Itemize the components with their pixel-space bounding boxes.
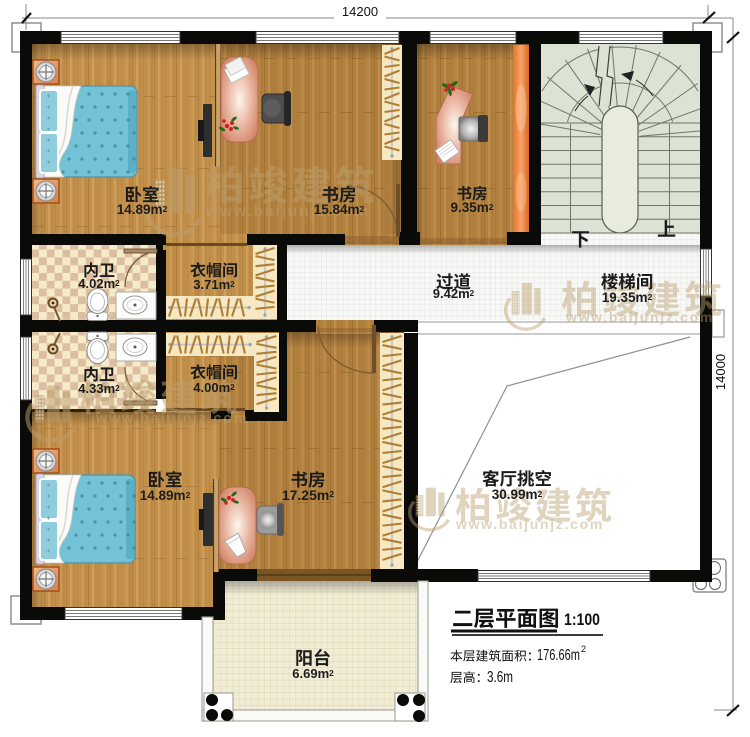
svg-text:6.69m2: 6.69m2 <box>292 666 334 681</box>
svg-text:14000: 14000 <box>713 354 728 390</box>
svg-text:14.89m2: 14.89m2 <box>140 488 191 503</box>
svg-text:9.42m2: 9.42m2 <box>433 286 475 301</box>
svg-text:3.6m: 3.6m <box>487 669 513 686</box>
svg-text:176.66m: 176.66m <box>537 647 580 664</box>
svg-text:14.89m2: 14.89m2 <box>117 202 168 217</box>
svg-text:17.25m2: 17.25m2 <box>282 487 334 503</box>
svg-text:30.99m2: 30.99m2 <box>492 487 543 502</box>
svg-text:www.baijunjz.com: www.baijunjz.com <box>95 411 248 427</box>
svg-text:14200: 14200 <box>342 4 378 19</box>
svg-text:www.baijunjz.com: www.baijunjz.com <box>565 309 714 325</box>
svg-text:19.35m2: 19.35m2 <box>602 290 653 305</box>
svg-text:4.33m2: 4.33m2 <box>78 381 120 396</box>
svg-text:15.84m2: 15.84m2 <box>314 202 365 217</box>
svg-text:2: 2 <box>581 644 586 654</box>
svg-text:www.baijunjz.com: www.baijunjz.com <box>455 516 604 532</box>
svg-text:3.71m2: 3.71m2 <box>193 277 235 292</box>
svg-text:4.02m2: 4.02m2 <box>78 276 120 291</box>
svg-text:9.35m2: 9.35m2 <box>451 200 494 215</box>
svg-text:1:100: 1:100 <box>564 611 600 629</box>
svg-text:4.00m2: 4.00m2 <box>193 380 235 395</box>
